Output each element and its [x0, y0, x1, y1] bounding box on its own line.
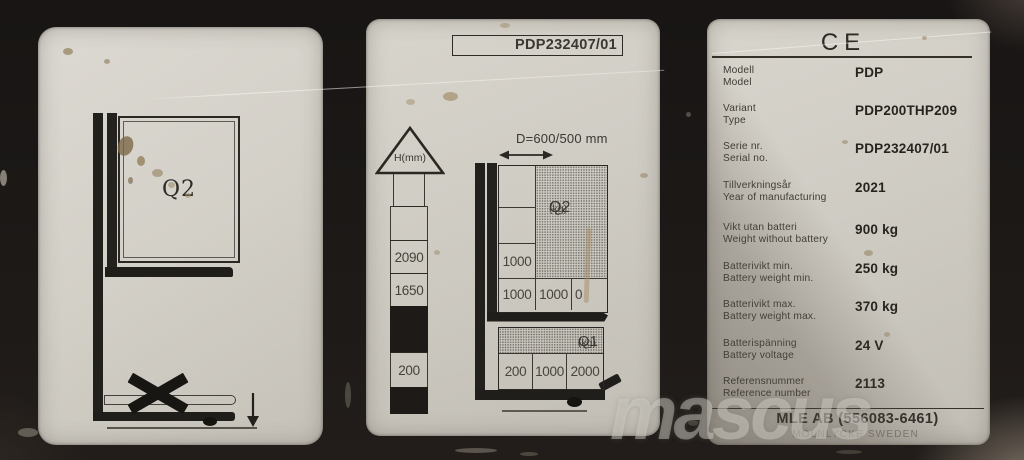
q2-cell: 0: [572, 278, 607, 310]
q1-cell: 200: [499, 354, 533, 389]
height-scale-cell: 200: [390, 352, 428, 388]
dirt-speck: [520, 452, 538, 456]
spec-row-weight: Vikt utan batteriWeight without battery …: [723, 222, 979, 250]
q2-cell: [499, 208, 536, 244]
q1-capacity-table: Q1(kg) 200 1000 2000: [498, 327, 604, 390]
dirt-streak: [345, 382, 351, 408]
fork-inner-bar: [487, 163, 497, 321]
dirt-speck: [0, 170, 7, 186]
q2-cell: 1000: [536, 278, 572, 310]
spec-row-serial: Serie nr.Serial no. PDP232407/01: [723, 141, 979, 169]
height-scale-cell-black: [390, 387, 428, 414]
load-position-pictogram-plate: Q2: [38, 27, 323, 445]
load-box-inner-line: [123, 121, 235, 258]
height-unit-label: H(mm): [376, 152, 444, 164]
fork-outer-bar: [475, 163, 485, 400]
q2-cell: [499, 166, 536, 208]
ground-line: [502, 410, 587, 412]
photo-forklift-nameplates: Q2 PDP232407/01 H(mm) 2090 1650 200 D=60…: [0, 0, 1024, 460]
height-scale-cell-black: [390, 306, 428, 353]
dirt-speck: [18, 428, 38, 437]
ground-line: [107, 427, 257, 429]
load-box: Q2: [118, 116, 240, 263]
load-distance-label: D=600/500 mm: [516, 131, 646, 146]
spec-value: 24 V: [855, 338, 884, 353]
spec-row-battery-max: Batterivikt max.Battery weight max. 370 …: [723, 299, 979, 327]
q1-cell: 1000: [533, 354, 567, 389]
capacity-chart-plate: PDP232407/01 H(mm) 2090 1650 200 D=600/5…: [366, 19, 660, 436]
fork-lower-arm: [475, 390, 605, 400]
q2-cell: 1000: [499, 244, 536, 278]
manufacturer-address: MÖLNLYCKE SWEDEN: [707, 429, 990, 440]
mast-outer-bar: [93, 113, 103, 415]
q1-title: Q1(kg): [578, 333, 596, 350]
dirt-speck: [836, 450, 862, 454]
divider-line: [712, 56, 972, 58]
spec-row-reference: ReferensnummerReference number 2113: [723, 376, 979, 404]
mast-inner-bar: [107, 113, 117, 277]
spec-value: 250 kg: [855, 261, 898, 276]
spec-row-year: TillverkningsårYear of manufacturing 202…: [723, 180, 979, 208]
dirt-speck: [455, 448, 497, 453]
ce-mark: CE: [707, 29, 990, 57]
dirt-speck: [686, 112, 691, 117]
fork-upper-arm: [487, 312, 608, 322]
q2-cell: 1000: [499, 278, 536, 310]
spec-row-model: ModellModel PDP: [723, 65, 979, 93]
specification-nameplate: CE ModellModel PDP VariantType PDP200THP…: [707, 19, 990, 445]
q2-capacity-table: 1000 Q2(kg) 1000 1000 0: [498, 165, 608, 313]
spec-row-variant: VariantType PDP200THP209: [723, 103, 979, 131]
height-scale-cell: [393, 173, 425, 207]
q1-cell: 2000: [567, 354, 603, 389]
spec-row-battery-min: Batterivikt min.Battery weight min. 250 …: [723, 261, 979, 289]
manufacturer-name: MLE AB (556083-6461): [707, 411, 990, 427]
height-scale-cell: [390, 206, 428, 241]
spec-value: PDP200THP209: [855, 103, 957, 118]
q2-hatch-area: Q2(kg): [536, 166, 607, 278]
serial-number-box: PDP232407/01: [452, 35, 623, 56]
q2-title: Q2(kg): [549, 199, 567, 217]
width-arrow-icon: [498, 148, 554, 162]
dirt-speck: [688, 420, 698, 426]
spec-value: PDP: [855, 65, 883, 80]
load-support-arm: [105, 267, 233, 277]
spec-value: 370 kg: [855, 299, 898, 314]
height-arrow-icon: [375, 126, 445, 175]
spec-row-voltage: BatterispänningBattery voltage 24 V: [723, 338, 979, 366]
spec-value: 2021: [855, 180, 886, 195]
divider-line: [712, 408, 984, 409]
q1-hatch-area: Q1(kg): [499, 328, 603, 354]
spec-value: PDP232407/01: [855, 141, 949, 156]
height-scale-cell: 1650: [390, 273, 428, 307]
spec-value: 900 kg: [855, 222, 898, 237]
down-arrow-icon: [245, 393, 261, 429]
height-scale-cell: 2090: [390, 240, 428, 274]
caster-wheel-icon: [567, 397, 582, 407]
caster-wheel-icon: [203, 417, 217, 426]
spec-value: 2113: [855, 376, 885, 391]
